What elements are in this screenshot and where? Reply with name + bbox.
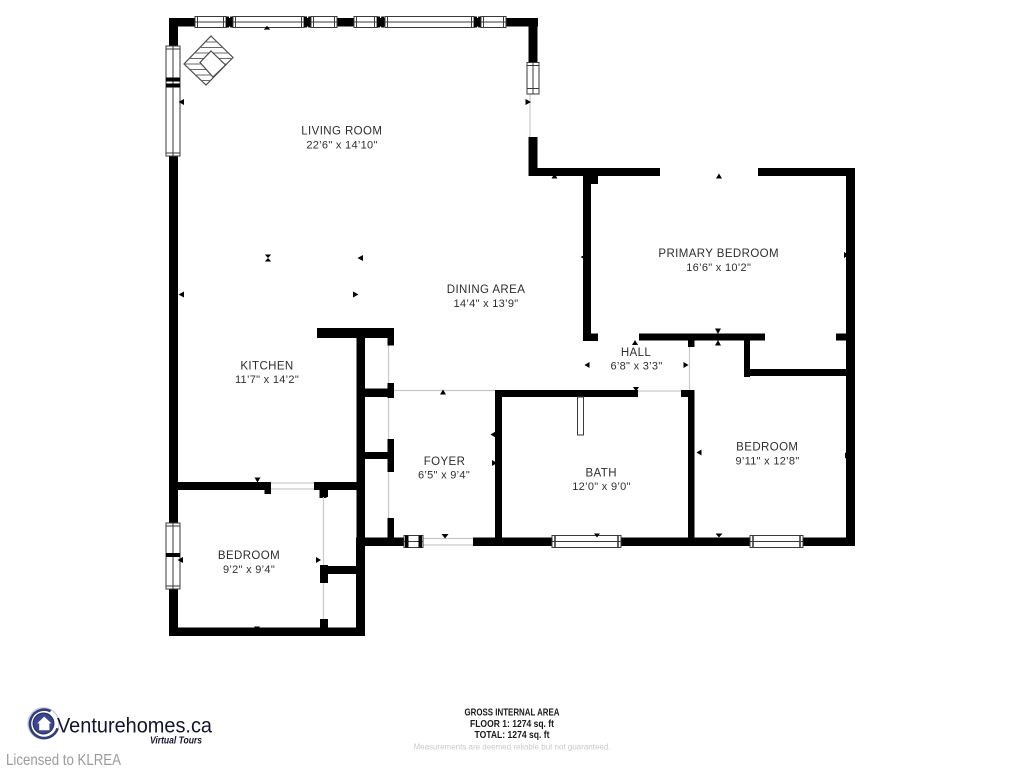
svg-text:BATH: BATH xyxy=(585,468,616,480)
svg-text:16’6" x 10’2": 16’6" x 10’2" xyxy=(686,262,751,274)
svg-text:Licensed to KLREA: Licensed to KLREA xyxy=(6,752,121,768)
svg-text:22’6" x 14’10": 22’6" x 14’10" xyxy=(306,139,377,151)
svg-text:Virtual Tours: Virtual Tours xyxy=(150,736,202,747)
svg-text:FOYER: FOYER xyxy=(424,456,466,468)
svg-text:DINING AREA: DINING AREA xyxy=(447,284,526,296)
svg-text:PRIMARY BEDROOM: PRIMARY BEDROOM xyxy=(658,248,779,260)
svg-text:6’8" x 3’3": 6’8" x 3’3" xyxy=(610,360,662,372)
svg-text:HALL: HALL xyxy=(621,347,652,359)
svg-text:14’4" x 13’9": 14’4" x 13’9" xyxy=(454,298,519,310)
svg-text:LIVING ROOM: LIVING ROOM xyxy=(301,125,382,137)
svg-text:12’0" x 9’0": 12’0" x 9’0" xyxy=(572,481,631,493)
svg-text:11’7" x 14’2": 11’7" x 14’2" xyxy=(235,374,299,386)
svg-text:Venturehomes.ca: Venturehomes.ca xyxy=(57,715,212,738)
svg-text:GROSS INTERNAL AREA: GROSS INTERNAL AREA xyxy=(465,707,560,719)
svg-text:BEDROOM: BEDROOM xyxy=(218,550,280,562)
svg-text:9’2" x 9’4": 9’2" x 9’4" xyxy=(223,564,275,576)
svg-text:9’11" x 12’8": 9’11" x 12’8" xyxy=(735,455,799,467)
svg-text:TOTAL: 1274 sq. ft: TOTAL: 1274 sq. ft xyxy=(475,729,550,741)
svg-text:6’5" x 9’4": 6’5" x 9’4" xyxy=(418,470,470,482)
svg-text:BEDROOM: BEDROOM xyxy=(736,442,798,454)
svg-text:KITCHEN: KITCHEN xyxy=(240,360,293,372)
svg-text:Measurements are deemed reliab: Measurements are deemed reliable but not… xyxy=(414,743,611,752)
